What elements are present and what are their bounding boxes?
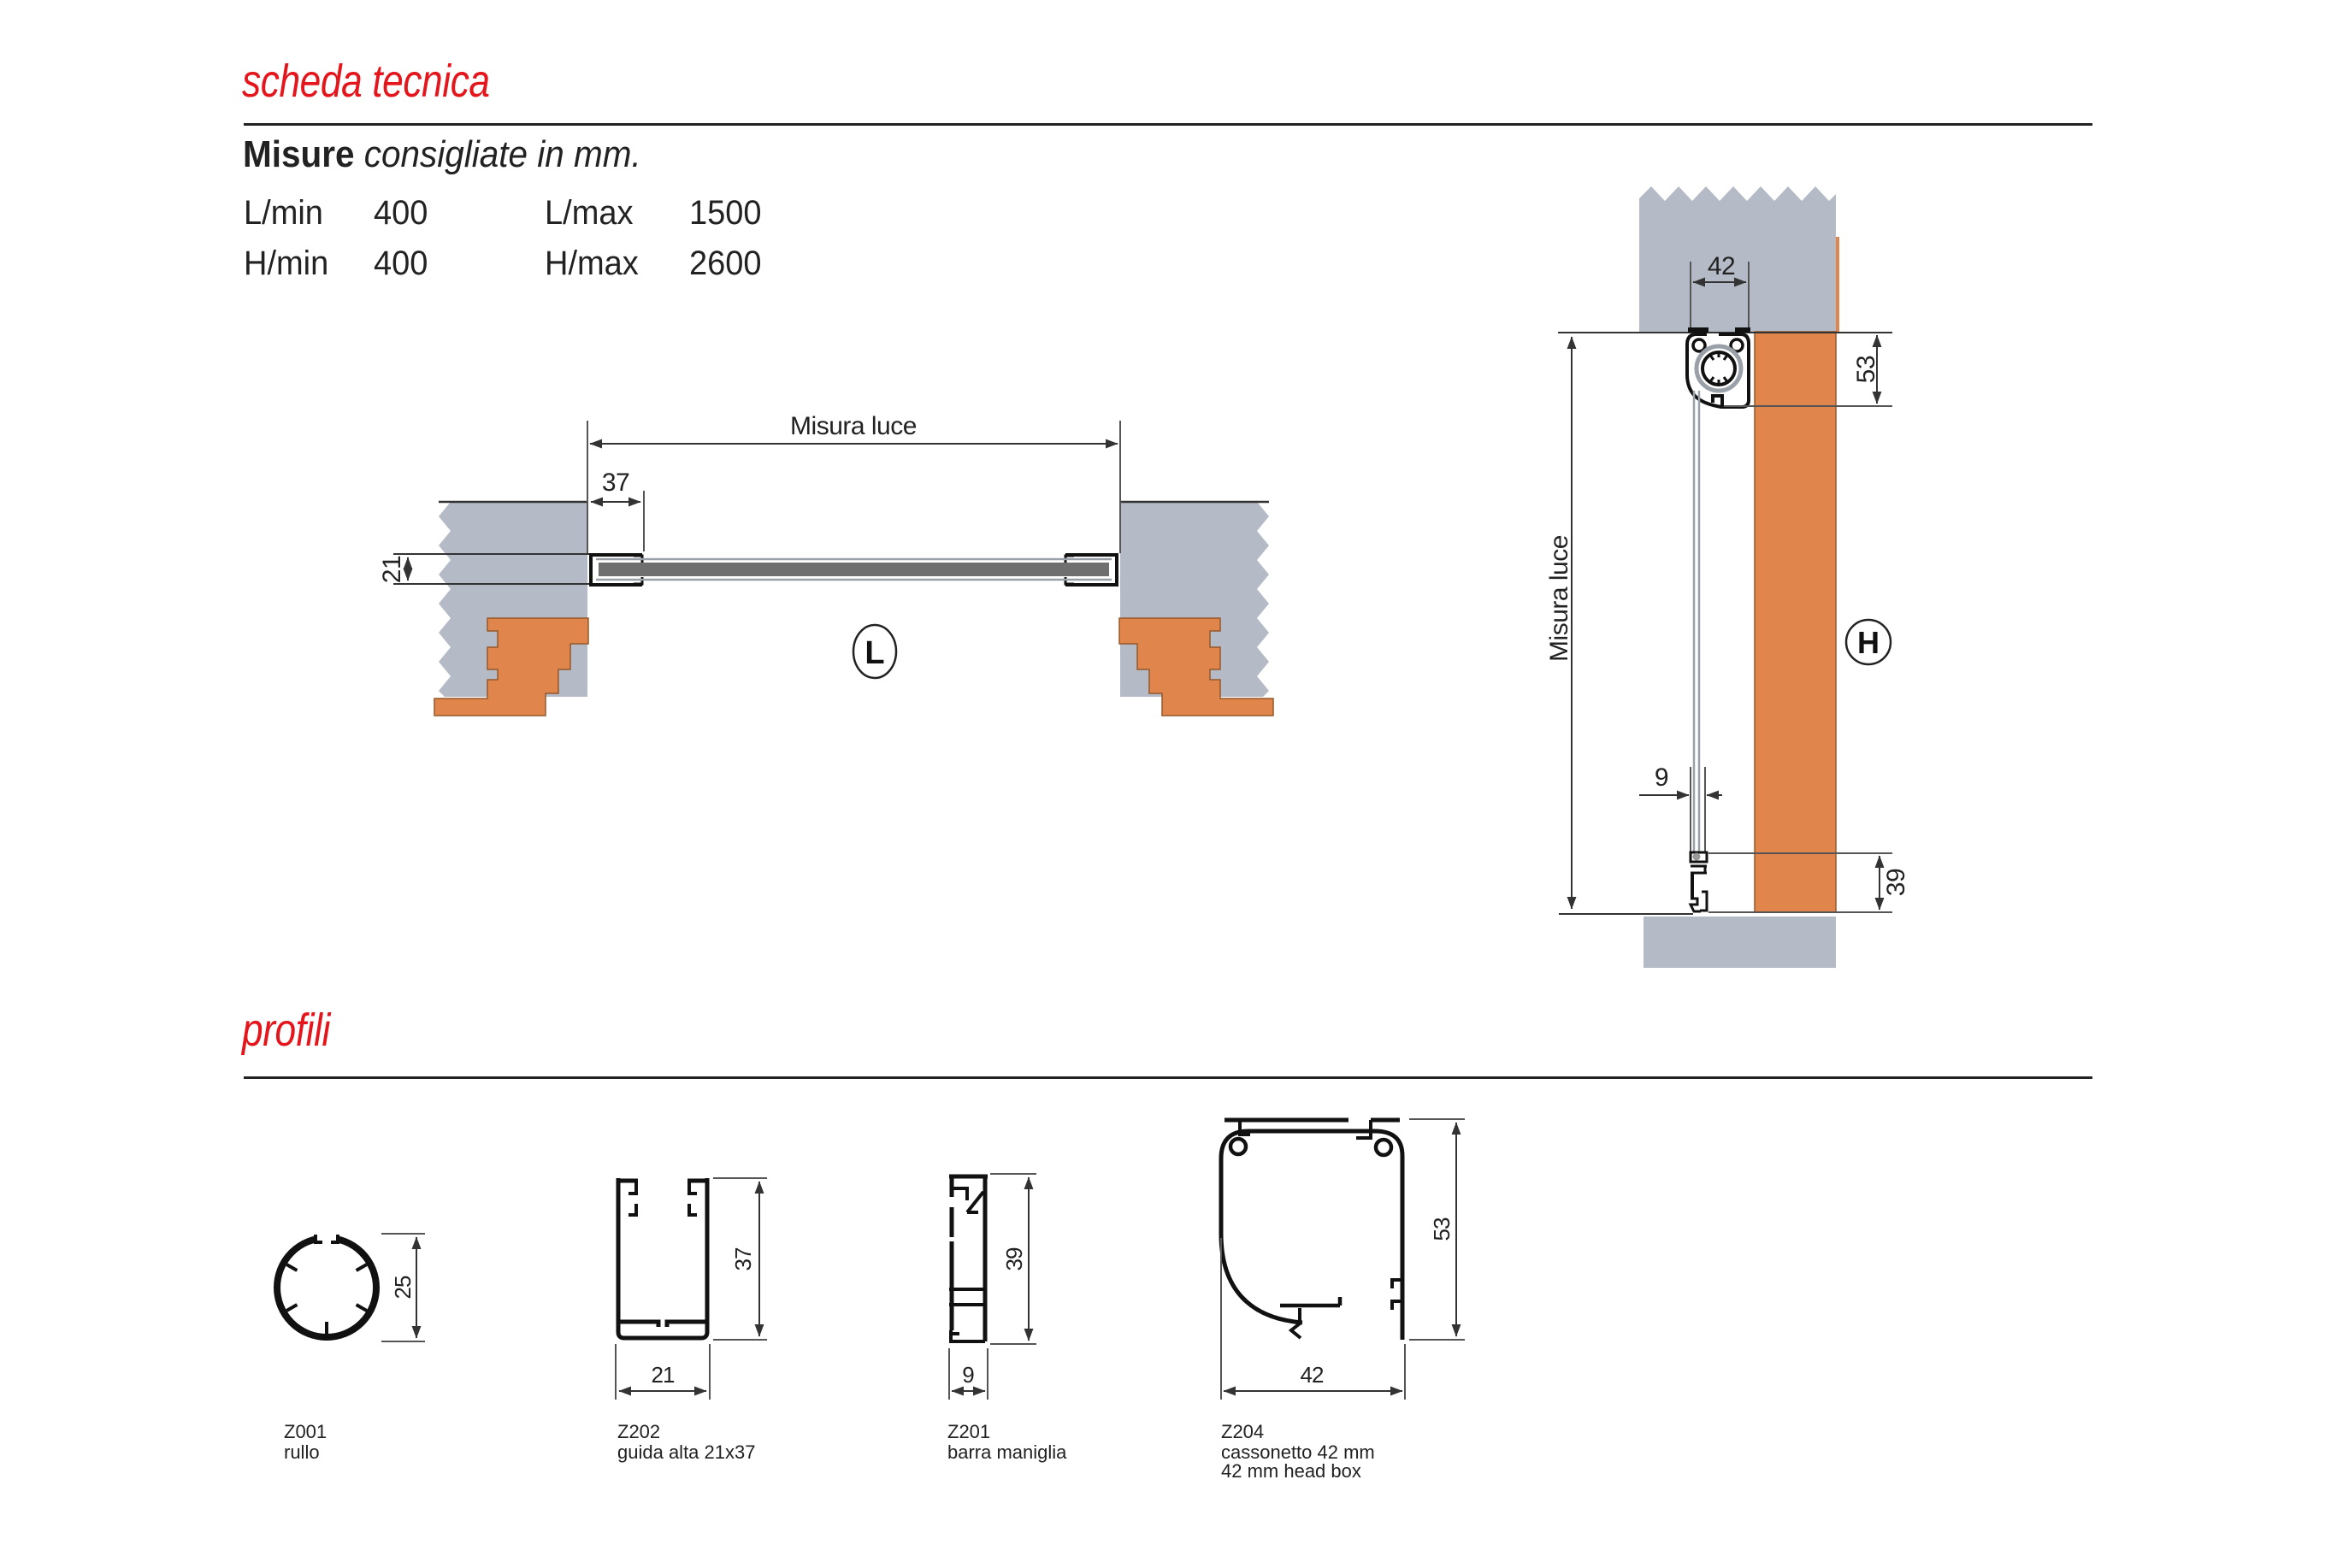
section-h-badge-letter: H (1857, 625, 1880, 660)
dim-9-ext-lines (1691, 767, 1705, 855)
misura-luce-v-label: Misura luce (1545, 535, 1573, 662)
brick-column (1755, 332, 1836, 912)
section-l-drawing: 21 Misura luce 37 L (378, 412, 1273, 716)
dim-37-label: 37 (602, 469, 629, 497)
brick-sliver (1836, 237, 1839, 332)
bar-profile-outline (949, 1176, 988, 1341)
dim-42-label: 42 (1708, 252, 1735, 280)
dim-39p-label: 39 (1001, 1247, 1027, 1270)
dim-21p-label: 21 (652, 1362, 675, 1388)
technical-drawings: 21 Misura luce 37 L (0, 0, 2331, 1568)
mesh-band (599, 563, 1109, 576)
profile-z204-code: Z204 (1221, 1421, 1264, 1442)
profile-z201-name: barra maniglia (947, 1441, 1067, 1463)
profile-z201-code: Z201 (947, 1421, 990, 1442)
dim-39-label: 39 (1882, 869, 1910, 896)
dim-42p-label: 42 (1301, 1362, 1324, 1388)
profile-z001-name: rullo (284, 1441, 320, 1463)
guide-profile-outline (618, 1178, 707, 1338)
dim-53-label: 53 (1852, 356, 1880, 383)
dim-21-label: 21 (378, 556, 406, 583)
dim-37p-label: 37 (730, 1247, 756, 1270)
profile-z204-name-en: 42 mm head box (1221, 1460, 1361, 1482)
section-h-drawing: Misura luce 42 (1545, 186, 1910, 968)
sill-block (1644, 917, 1836, 968)
misura-luce-ext-lines (587, 421, 1120, 553)
profile-z001-code: Z001 (284, 1421, 327, 1442)
headbox-profile-outline (1221, 1120, 1402, 1340)
profile-z201: 39 9 Z201 barra maniglia (947, 1174, 1067, 1463)
dim-53p-label: 53 (1429, 1217, 1455, 1241)
section-l-badge-letter: L (865, 635, 884, 671)
dim-9p-label: 9 (962, 1362, 974, 1388)
profile-z202-name: guida alta 21x37 (617, 1441, 755, 1463)
headbox-section (1687, 327, 1750, 407)
bottom-bar-section (1691, 852, 1707, 911)
dim-9-label: 9 (1655, 763, 1668, 792)
profile-z204: 53 42 Z204 cassonetto 42 mm 42 mm head b… (1221, 1119, 1465, 1482)
dim-25-label: 25 (390, 1276, 416, 1299)
mesh-vertical-lines (1694, 391, 1699, 855)
datasheet-page: scheda tecnica Misure consigliate in mm.… (0, 0, 2331, 1568)
profile-z202-code: Z202 (617, 1421, 660, 1442)
profile-z202: 37 21 Z202 guida alta 21x37 (616, 1178, 767, 1463)
wall-top-block (1639, 186, 1836, 332)
misura-luce-label: Misura luce (790, 412, 917, 440)
profile-z001: 25 Z001 rullo (277, 1229, 425, 1463)
